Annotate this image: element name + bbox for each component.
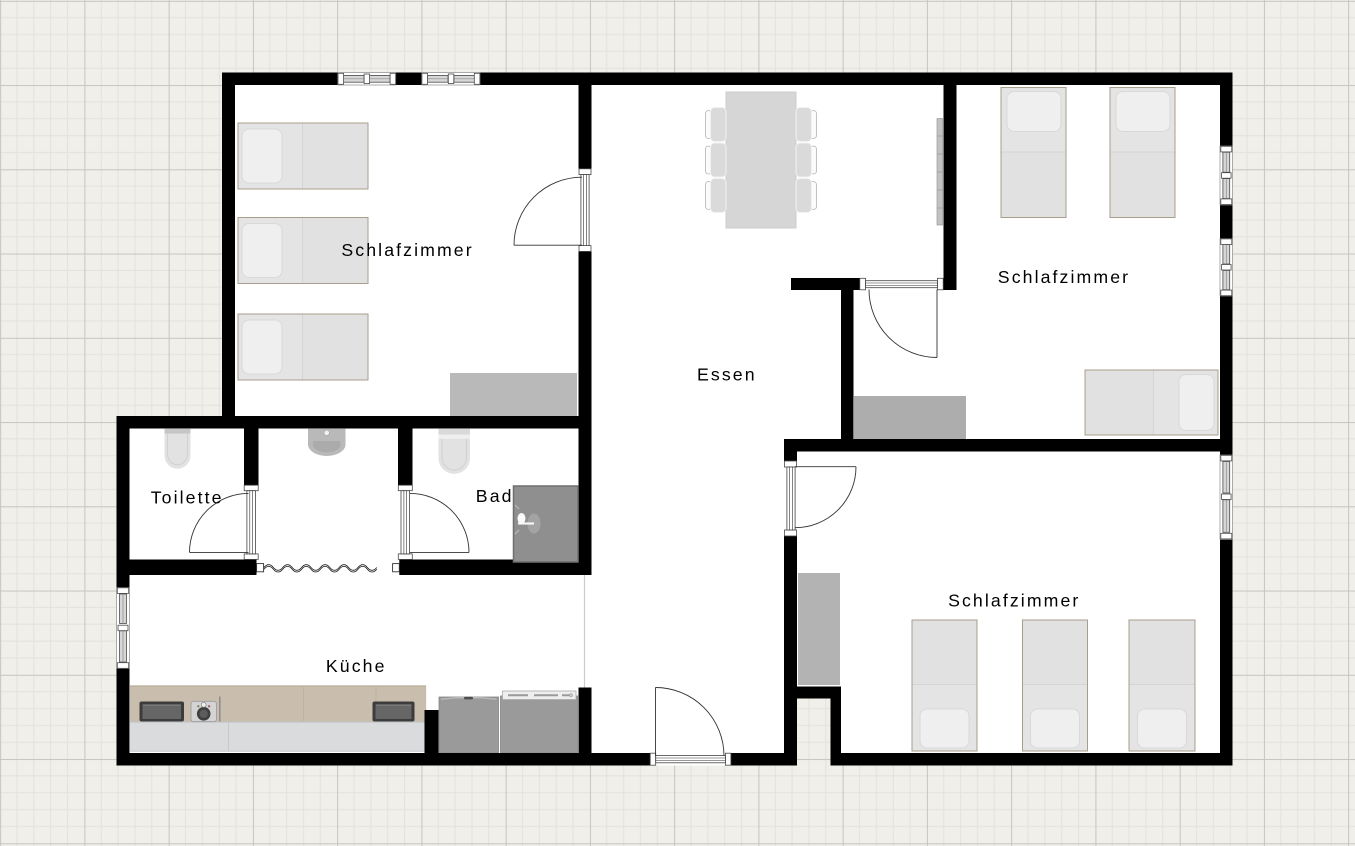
svg-text:Schlafzimmer: Schlafzimmer (998, 267, 1130, 287)
svg-text:Toilette: Toilette (151, 488, 224, 508)
svg-text:Bad: Bad (476, 486, 514, 506)
svg-text:Küche: Küche (326, 656, 387, 676)
svg-text:Essen: Essen (697, 365, 757, 385)
svg-text:Schlafzimmer: Schlafzimmer (341, 240, 473, 260)
svg-text:Schlafzimmer: Schlafzimmer (948, 591, 1080, 611)
